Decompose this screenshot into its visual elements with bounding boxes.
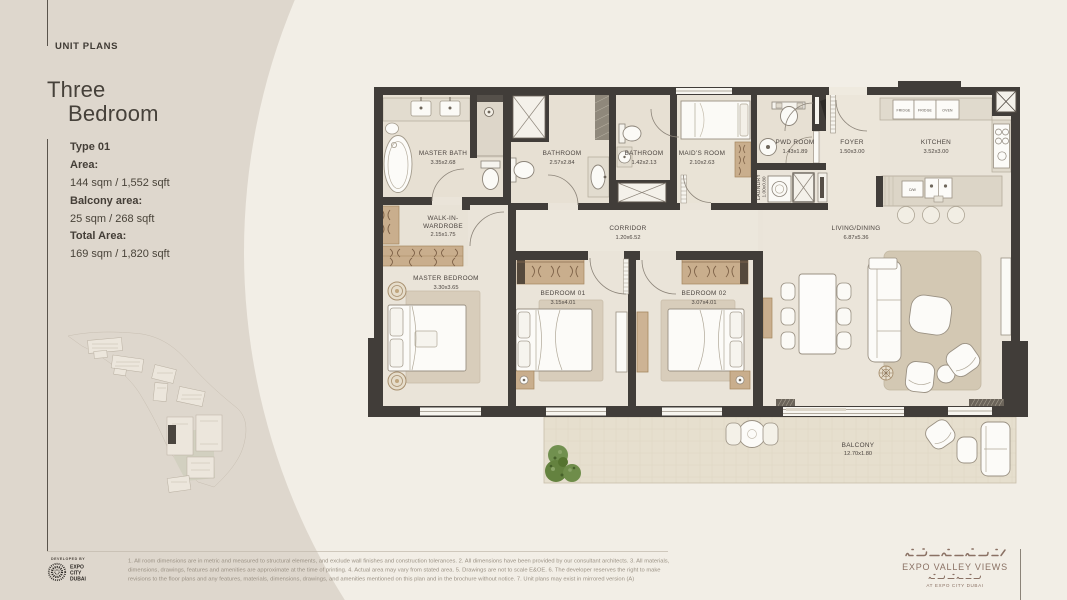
- svg-text:WALK-IN-: WALK-IN-: [428, 215, 459, 222]
- svg-text:3.07x4.01: 3.07x4.01: [692, 300, 717, 306]
- svg-text:BALCONY: BALCONY: [842, 442, 875, 449]
- svg-text:BATHROOM: BATHROOM: [625, 150, 664, 157]
- svg-text:FOYER: FOYER: [840, 139, 864, 146]
- svg-text:EXPO VALLEY VIEWS: EXPO VALLEY VIEWS: [902, 562, 1008, 572]
- svg-text:BEDROOM 02: BEDROOM 02: [682, 290, 727, 297]
- svg-text:AT EXPO CITY DUBAI: AT EXPO CITY DUBAI: [926, 583, 983, 588]
- svg-text:PWD ROOM: PWD ROOM: [776, 139, 815, 146]
- svg-text:Balcony area:: Balcony area:: [70, 195, 142, 207]
- svg-text:OVEN: OVEN: [942, 109, 953, 113]
- svg-text:D/W: D/W: [909, 188, 916, 192]
- svg-text:25 sqm / 268 sqft: 25 sqm / 268 sqft: [70, 213, 154, 225]
- svg-text:2.15x1.75: 2.15x1.75: [431, 232, 456, 238]
- svg-text:FRIDGE: FRIDGE: [918, 109, 933, 113]
- svg-text:Area:: Area:: [70, 159, 98, 171]
- svg-text:DUBAI: DUBAI: [70, 577, 86, 583]
- svg-text:3.52x3.00: 3.52x3.00: [924, 149, 949, 155]
- svg-text:Total Area:: Total Area:: [70, 230, 126, 242]
- svg-text:MASTER BATH: MASTER BATH: [419, 150, 467, 157]
- svg-text:3.35x2.68: 3.35x2.68: [431, 160, 456, 166]
- svg-text:Three: Three: [47, 77, 105, 102]
- svg-text:BEDROOM 01: BEDROOM 01: [541, 290, 586, 297]
- svg-text:1.42x2.13: 1.42x2.13: [632, 160, 657, 166]
- svg-text:CORRIDOR: CORRIDOR: [609, 225, 646, 232]
- svg-text:Bedroom: Bedroom: [68, 101, 159, 126]
- svg-text:MASTER BEDROOM: MASTER BEDROOM: [413, 275, 479, 282]
- svg-text:DEVELOPED BY: DEVELOPED BY: [51, 557, 85, 561]
- svg-text:1.43x1.89: 1.43x1.89: [783, 149, 808, 155]
- svg-text:WARDROBE: WARDROBE: [423, 223, 463, 230]
- svg-text:12.70x1.80: 12.70x1.80: [844, 451, 872, 457]
- svg-text:1.00x0.80: 1.00x0.80: [762, 176, 768, 197]
- svg-text:MAID'S ROOM: MAID'S ROOM: [679, 150, 725, 157]
- svg-text:Type 01: Type 01: [70, 141, 110, 153]
- svg-text:LAUNDRY: LAUNDRY: [756, 174, 762, 200]
- svg-text:LIVING/DINING: LIVING/DINING: [832, 225, 881, 232]
- svg-text:UNIT PLANS: UNIT PLANS: [55, 41, 118, 52]
- svg-text:BATHROOM: BATHROOM: [543, 150, 582, 157]
- svg-text:1.50x3.00: 1.50x3.00: [840, 149, 865, 155]
- svg-text:6.87x5.36: 6.87x5.36: [844, 235, 869, 241]
- svg-text:1. All room dimensions are in: 1. All room dimensions are in metric and…: [128, 559, 670, 565]
- svg-text:2.57x2.84: 2.57x2.84: [550, 160, 575, 166]
- svg-text:dimensions, drawings, features: dimensions, drawings, features and ameni…: [128, 568, 661, 574]
- svg-text:1.20x6.52: 1.20x6.52: [616, 235, 641, 241]
- svg-text:144 sqm / 1,552 sqft: 144 sqm / 1,552 sqft: [70, 177, 170, 189]
- svg-text:KITCHEN: KITCHEN: [921, 139, 951, 146]
- svg-text:revisions to the floor plans a: revisions to the floor plans and any fea…: [128, 577, 634, 583]
- svg-text:3.15x4.01: 3.15x4.01: [551, 300, 576, 306]
- svg-text:FRIDGE: FRIDGE: [896, 109, 911, 113]
- svg-text:2.10x2.63: 2.10x2.63: [690, 160, 715, 166]
- svg-text:3.30x3.65: 3.30x3.65: [434, 285, 459, 291]
- svg-text:169 sqm / 1,820 sqft: 169 sqm / 1,820 sqft: [70, 248, 170, 260]
